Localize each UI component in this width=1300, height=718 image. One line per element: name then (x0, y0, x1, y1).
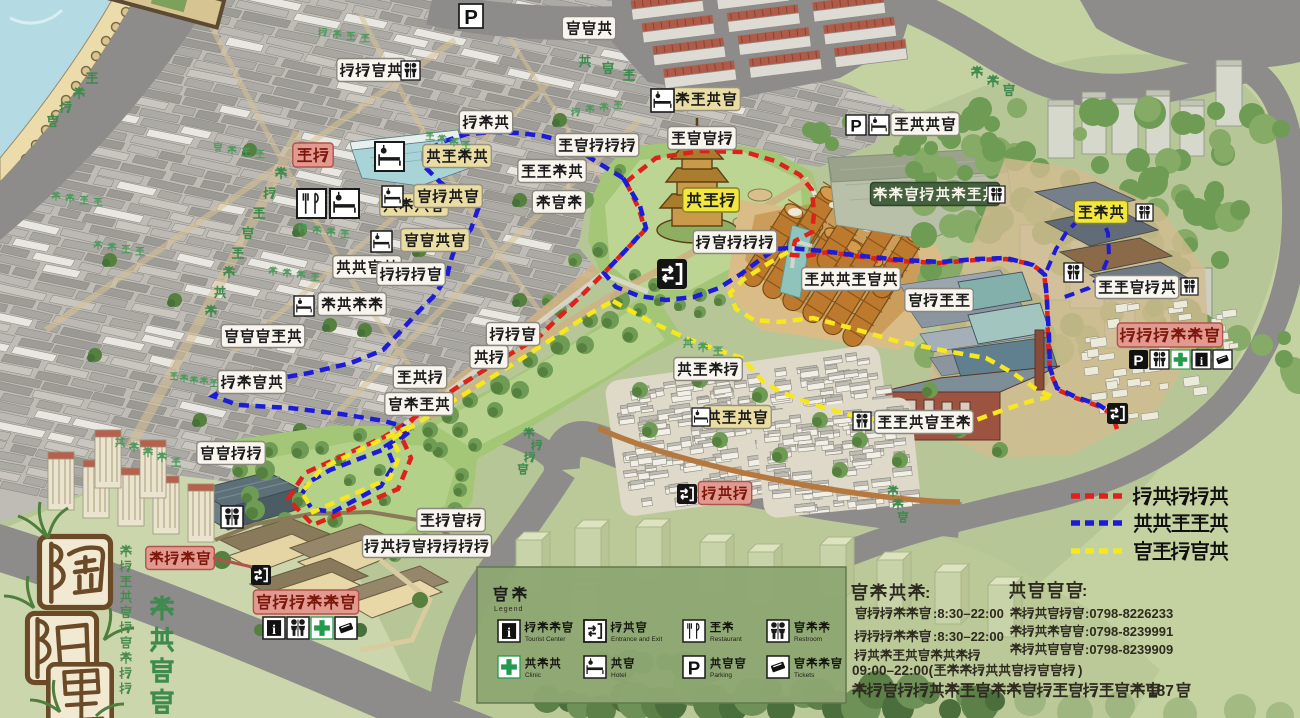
svg-text:Tourist Center: Tourist Center (525, 636, 566, 643)
svg-text:Tickets: Tickets (794, 672, 815, 679)
svg-text:Clinic: Clinic (525, 672, 542, 679)
svg-text:09:00–22:00(: 09:00–22:00( (852, 663, 934, 678)
svg-text:Restaurant: Restaurant (710, 636, 742, 643)
svg-text:P: P (688, 657, 700, 678)
svg-text::8:30–22:00: :8:30–22:00 (933, 629, 1004, 644)
svg-text:P: P (1133, 353, 1143, 370)
svg-text:Legend: Legend (494, 606, 523, 613)
svg-text:P: P (464, 7, 478, 29)
svg-text:i: i (507, 625, 511, 640)
svg-text:Parking: Parking (710, 672, 732, 679)
svg-text:Restroom: Restroom (794, 636, 822, 643)
svg-text::0798-8226233: :0798-8226233 (1085, 606, 1173, 621)
svg-text::0798-8239991: :0798-8239991 (1085, 624, 1173, 639)
svg-text:Entrance and Exit: Entrance and Exit (611, 636, 663, 643)
svg-text::: : (925, 585, 930, 602)
svg-text::: : (1082, 583, 1087, 600)
svg-text::8:30–22:00: :8:30–22:00 (933, 606, 1004, 621)
svg-text:P: P (850, 117, 861, 136)
svg-text:Hotel: Hotel (611, 672, 627, 679)
svg-text:187: 187 (1148, 683, 1174, 700)
svg-text::0798-8239909: :0798-8239909 (1085, 642, 1173, 657)
svg-text:): ) (1078, 663, 1083, 678)
svg-text:i: i (272, 622, 276, 637)
